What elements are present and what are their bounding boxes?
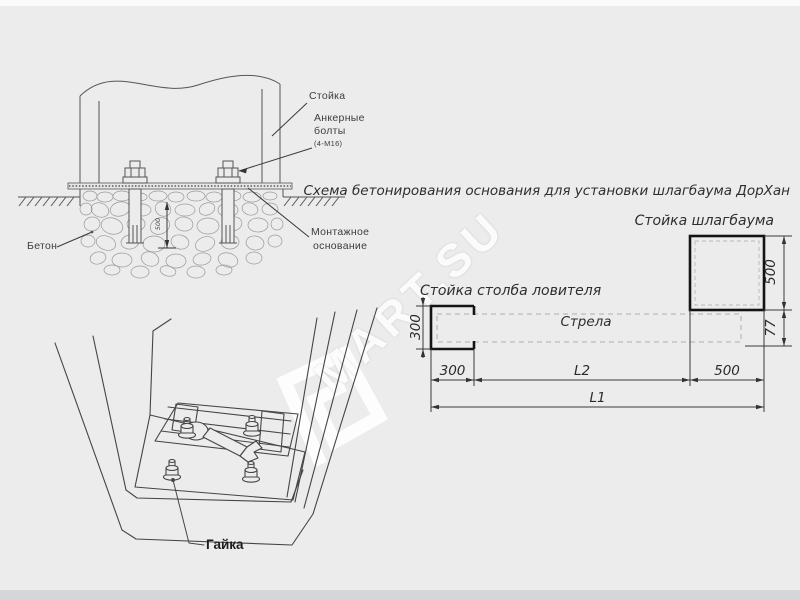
drawing-sheet: MART.SU — [0, 0, 800, 600]
dim-catcher-height: 300 — [408, 306, 424, 348]
barrier-post-footprint — [690, 236, 764, 310]
label-catcher-post: Стойка столба ловителя — [420, 283, 601, 299]
bottom-band — [0, 590, 800, 600]
dim-catcher-width: 300 — [431, 363, 474, 379]
dim-depth: 500 — [154, 211, 166, 237]
dim-boom-offset: 77 — [763, 307, 779, 349]
label-anchor-bolts-2: болты — [314, 125, 346, 137]
anchor-bolt — [123, 161, 147, 243]
dim-barrier-side: 500 — [763, 251, 779, 293]
concrete-rubble — [80, 191, 283, 278]
dim-barrier-width: 500 — [690, 363, 764, 379]
label-anchor-bolts-spec: (4-М16) — [314, 139, 342, 148]
label-barrier-post: Стойка шлагбаума — [635, 213, 774, 229]
anchor-bolt — [216, 161, 240, 243]
plan-title: Схема бетонирования основания для устано… — [304, 183, 791, 199]
label-mounting-base-1: Монтажное — [311, 226, 369, 238]
pit-bolt — [243, 462, 260, 483]
pit-bolt — [164, 460, 181, 481]
section-drawing — [18, 75, 345, 278]
label-post: Стойка — [309, 90, 345, 102]
line-art — [0, 0, 800, 600]
label-mounting-base-2: основание — [313, 240, 367, 252]
label-nut: Гайка — [206, 537, 244, 552]
label-boom: Стрела — [540, 314, 632, 330]
pit-bolt — [244, 416, 261, 437]
label-concrete: Бетон — [27, 240, 57, 252]
dim-l2: L2 — [474, 363, 690, 379]
pit-drawing — [55, 308, 377, 545]
dim-l1: L1 — [431, 390, 764, 406]
label-anchor-bolts-1: Анкерные — [314, 112, 365, 124]
